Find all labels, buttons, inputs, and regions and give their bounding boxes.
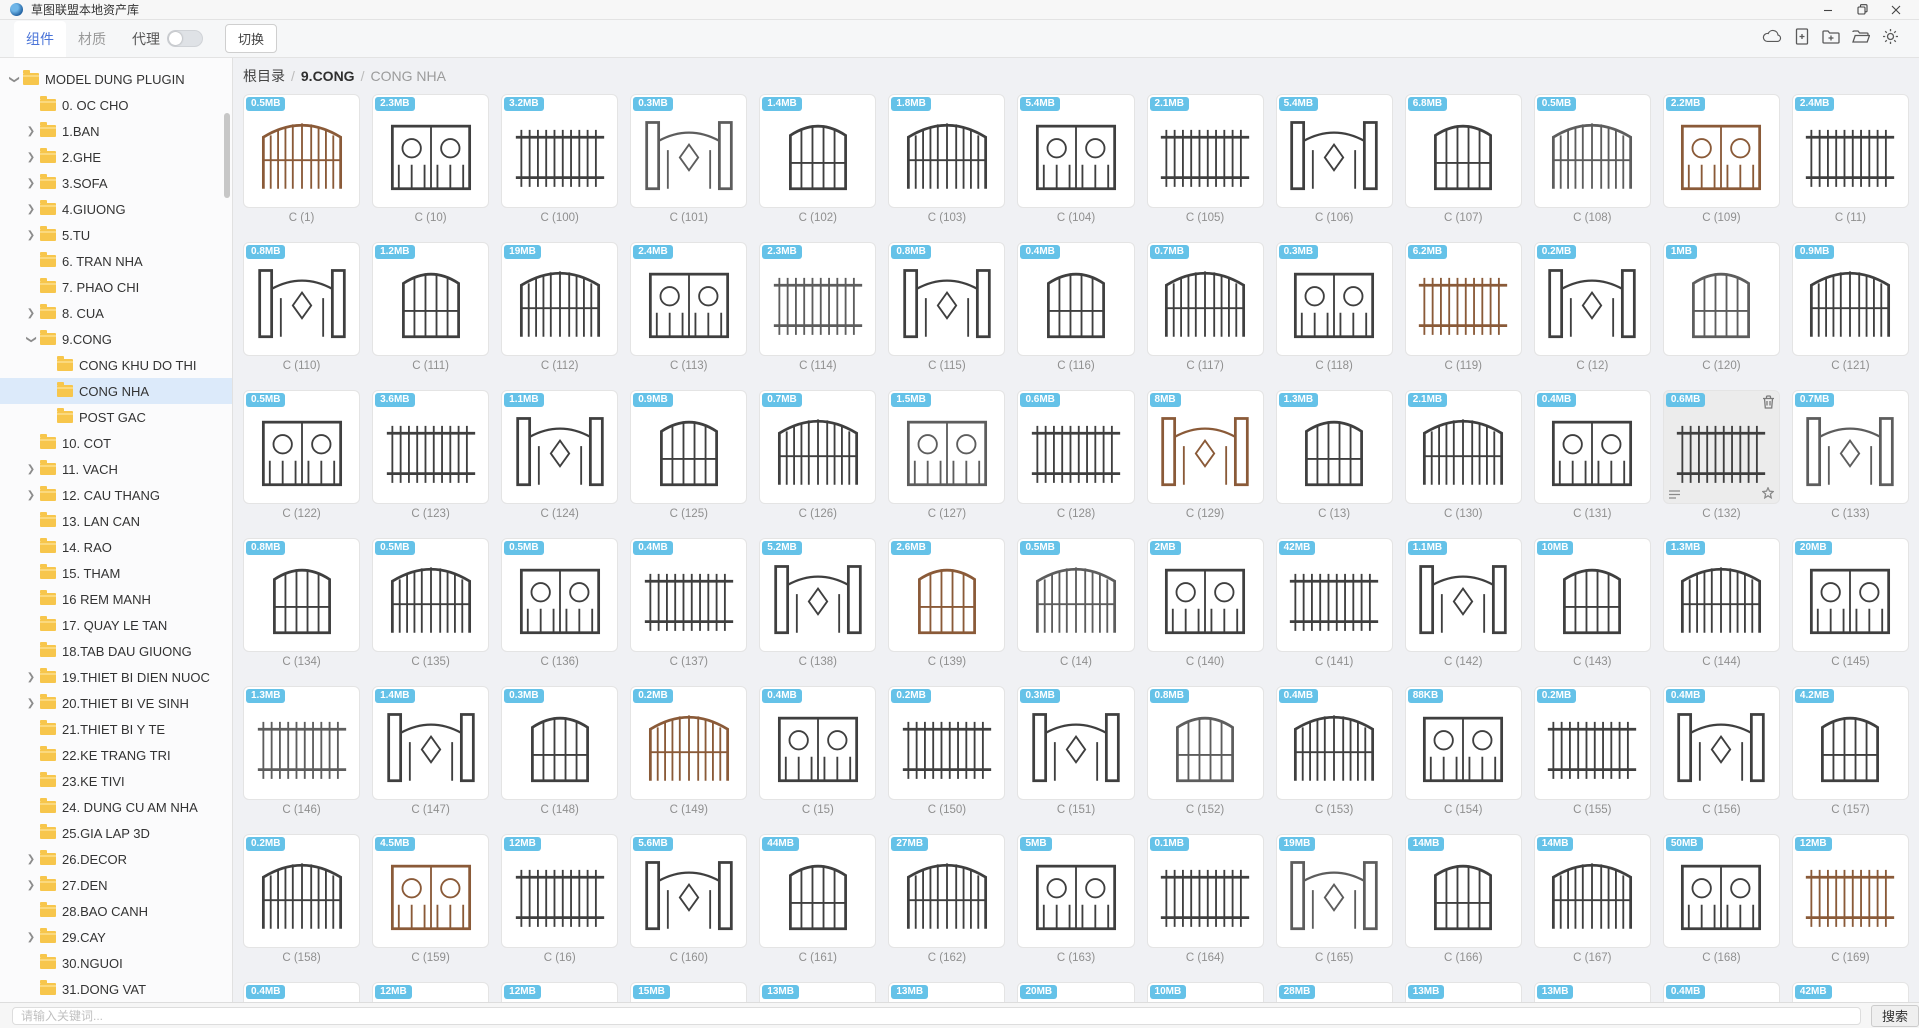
asset-card-c-105[interactable]: 2.1MB: [1147, 94, 1264, 208]
folder-icon: [40, 255, 56, 267]
size-badge: 5MB: [1020, 837, 1051, 851]
tree-item-10-cot[interactable]: 10. COT: [0, 430, 232, 456]
asset-card-c-10[interactable]: 2.3MB: [372, 94, 489, 208]
size-badge: 1.3MB: [246, 689, 285, 703]
chevron-icon[interactable]: ❯: [25, 178, 37, 189]
asset-thumbnail: [901, 257, 993, 341]
asset-card-c-11[interactable]: 2.4MB: [1792, 94, 1909, 208]
tree-item-5-tu[interactable]: ❯5.TU: [0, 222, 232, 248]
asset-label: C (149): [630, 804, 747, 820]
size-badge: 0.4MB: [1666, 985, 1705, 999]
chevron-icon[interactable]: ❯: [25, 126, 37, 137]
asset-card-c-136[interactable]: 0.5MB: [501, 538, 618, 652]
asset-cell: 0.9MBC (121): [1792, 242, 1909, 376]
tree-item-post-gac[interactable]: POST GAC: [0, 404, 232, 430]
asset-card-c-145[interactable]: 20MB: [1792, 538, 1909, 652]
asset-cell: 0.4MBC (153): [1276, 686, 1393, 820]
asset-label: C (115): [888, 360, 1005, 376]
tree-item-label: 28.BAO CANH: [62, 904, 148, 919]
asset-card-c-128[interactable]: 0.6MB: [1017, 390, 1134, 504]
tree-item-cong-khu-do-thi[interactable]: CONG KHU DO THI: [0, 352, 232, 378]
asset-card-c-149[interactable]: 0.2MB: [630, 686, 747, 800]
cloud-icon[interactable]: [1762, 28, 1782, 49]
size-badge: 2.1MB: [1150, 97, 1189, 111]
asset-card-c-153[interactable]: 0.4MB: [1276, 686, 1393, 800]
chevron-icon[interactable]: ❯: [26, 333, 37, 345]
size-badge: 5.4MB: [1279, 97, 1318, 111]
asset-card-c-111[interactable]: 1.2MB: [372, 242, 489, 356]
chevron-icon[interactable]: ❯: [25, 152, 37, 163]
asset-card-c-146[interactable]: 1.3MB: [243, 686, 360, 800]
asset-cell: 2MBC (140): [1147, 538, 1264, 672]
asset-thumbnail: [1417, 405, 1509, 489]
asset-cell: 44MBC (161): [759, 834, 876, 968]
asset-card-c-107[interactable]: 6.8MB: [1405, 94, 1522, 208]
asset-cell: 14MBC (167): [1534, 834, 1651, 968]
tree-item-30-nguoi[interactable]: 30.NGUOI: [0, 950, 232, 976]
asset-label: C (148): [501, 804, 618, 820]
asset-thumbnail: [1675, 701, 1767, 785]
tree-item-25-gia-lap-3d[interactable]: 25.GIA LAP 3D: [0, 820, 232, 846]
asset-card-c-14[interactable]: 0.5MB: [1017, 538, 1134, 652]
asset-card-c-151[interactable]: 0.3MB: [1017, 686, 1134, 800]
asset-card-c-159[interactable]: 4.5MB: [372, 834, 489, 948]
asset-card-c-131[interactable]: 0.4MB: [1534, 390, 1651, 504]
chevron-icon[interactable]: ❯: [25, 672, 37, 683]
chevron-icon[interactable]: ❯: [9, 73, 20, 85]
tree-item-28-bao-canh[interactable]: 28.BAO CANH: [0, 898, 232, 924]
chevron-icon[interactable]: ❯: [25, 204, 37, 215]
asset-label: C (130): [1405, 508, 1522, 524]
size-badge: 0.3MB: [1279, 245, 1318, 259]
folder-icon: [40, 125, 56, 137]
asset-card-c-127[interactable]: 1.5MB: [888, 390, 1005, 504]
asset-thumbnail: [514, 405, 606, 489]
chevron-icon[interactable]: ❯: [25, 464, 37, 475]
asset-card-c-126[interactable]: 0.7MB: [759, 390, 876, 504]
size-badge: 0.2MB: [633, 689, 672, 703]
tab-materials[interactable]: 材质: [66, 21, 118, 57]
asset-card[interactable]: 42MB: [1792, 982, 1909, 1002]
tree-item-19-thiet-bi-dien-nuoc[interactable]: ❯19.THIET BI DIEN NUOC: [0, 664, 232, 690]
asset-card-c-102[interactable]: 1.4MB: [759, 94, 876, 208]
size-badge: 0.6MB: [1020, 393, 1059, 407]
asset-label: C (120): [1663, 360, 1780, 376]
folder-icon: [40, 515, 56, 527]
size-badge: 5.6MB: [633, 837, 672, 851]
tree-item-1-ban[interactable]: ❯1.BAN: [0, 118, 232, 144]
asset-thumbnail: [1675, 257, 1767, 341]
asset-card-c-150[interactable]: 0.2MB: [888, 686, 1005, 800]
size-badge: 1.3MB: [1279, 393, 1318, 407]
asset-card-c-167[interactable]: 14MB: [1534, 834, 1651, 948]
tree-item-12-cau-thang[interactable]: ❯12. CAU THANG: [0, 482, 232, 508]
asset-card-c-157[interactable]: 4.2MB: [1792, 686, 1909, 800]
delete-icon[interactable]: [1762, 395, 1775, 414]
chevron-icon[interactable]: ❯: [25, 854, 37, 865]
asset-cell: 10MBC (143): [1534, 538, 1651, 672]
size-badge: 44MB: [762, 837, 799, 851]
tree-item-20-thiet-bi-ve-sinh[interactable]: ❯20.THIET BI VE SINH: [0, 690, 232, 716]
asset-thumbnail: [385, 553, 477, 637]
folder-icon: [40, 437, 56, 449]
asset-card-c-13[interactable]: 1.3MB: [1276, 390, 1393, 504]
tree-item-3-sofa[interactable]: ❯3.SOFA: [0, 170, 232, 196]
list-icon[interactable]: [1669, 486, 1680, 504]
tree-item-model-dung-plugin[interactable]: ❯MODEL DUNG PLUGIN: [0, 66, 232, 92]
asset-card[interactable]: 0.4MB: [243, 982, 360, 1002]
asset-label: C (163): [1017, 952, 1134, 968]
asset-card-c-119[interactable]: 6.2MB: [1405, 242, 1522, 356]
asset-card-c-110[interactable]: 0.8MB: [243, 242, 360, 356]
asset-card-c-112[interactable]: 19MB: [501, 242, 618, 356]
asset-card-c-120[interactable]: 1MB: [1663, 242, 1780, 356]
asset-label: C (154): [1405, 804, 1522, 820]
asset-cell: 0.8MBC (115): [888, 242, 1005, 376]
asset-thumbnail: [514, 257, 606, 341]
asset-card-c-155[interactable]: 0.2MB: [1534, 686, 1651, 800]
asset-card-c-156[interactable]: 0.4MB: [1663, 686, 1780, 800]
asset-card-c-161[interactable]: 44MB: [759, 834, 876, 948]
size-badge: 0.3MB: [633, 97, 672, 111]
asset-card-c-130[interactable]: 2.1MB: [1405, 390, 1522, 504]
tree-item-24-dung-cu-am-nha[interactable]: 24. DUNG CU AM NHA: [0, 794, 232, 820]
tree-item-label: CONG KHU DO THI: [79, 358, 197, 373]
asset-thumbnail: [1030, 553, 1122, 637]
tree-item-16-rem-manh[interactable]: 16 REM MANH: [0, 586, 232, 612]
asset-card-c-16[interactable]: 12MB: [501, 834, 618, 948]
asset-thumbnail: [901, 701, 993, 785]
folder-icon: [57, 411, 73, 423]
asset-cell: 0.5MBC (136): [501, 538, 618, 672]
chevron-icon[interactable]: ❯: [25, 308, 37, 319]
asset-thumbnail: [643, 701, 735, 785]
tree-item-2-ghe[interactable]: ❯2.GHE: [0, 144, 232, 170]
asset-card-c-134[interactable]: 0.8MB: [243, 538, 360, 652]
search-button[interactable]: 搜索: [1871, 1005, 1919, 1027]
asset-card[interactable]: 12MB: [501, 982, 618, 1002]
size-badge: 0.5MB: [1020, 541, 1059, 555]
chevron-icon[interactable]: ❯: [25, 698, 37, 709]
tree-item-29-cay[interactable]: ❯29.CAY: [0, 924, 232, 950]
asset-thumbnail: [1159, 109, 1251, 193]
tree-item-13-lan-can[interactable]: 13. LAN CAN: [0, 508, 232, 534]
asset-cell: 14MBC (166): [1405, 834, 1522, 968]
asset-cell: 88KBC (154): [1405, 686, 1522, 820]
asset-cell: 13MB: [759, 982, 876, 1002]
asset-label: C (106): [1276, 212, 1393, 228]
tree-item-6-tran-nha[interactable]: 6. TRAN NHA: [0, 248, 232, 274]
asset-card[interactable]: 13MB: [1405, 982, 1522, 1002]
asset-cell: 19MBC (165): [1276, 834, 1393, 968]
tree-item-21-thiet-bi-y-te[interactable]: 21.THIET BI Y TE: [0, 716, 232, 742]
size-badge: 3.6MB: [375, 393, 414, 407]
asset-label: C (135): [372, 656, 489, 672]
asset-card-c-137[interactable]: 0.4MB: [630, 538, 747, 652]
asset-card-c-133[interactable]: 0.7MB: [1792, 390, 1909, 504]
asset-card-c-109[interactable]: 2.2MB: [1663, 94, 1780, 208]
tree-item-label: 21.THIET BI Y TE: [62, 722, 165, 737]
asset-card-c-124[interactable]: 1.1MB: [501, 390, 618, 504]
asset-card-c-144[interactable]: 1.3MB: [1663, 538, 1780, 652]
size-badge: 5.4MB: [1020, 97, 1059, 111]
asset-card-c-116[interactable]: 0.4MB: [1017, 242, 1134, 356]
folder-add-icon[interactable]: [1822, 29, 1840, 49]
asset-card-c-118[interactable]: 0.3MB: [1276, 242, 1393, 356]
asset-cell: 12MB: [501, 982, 618, 1002]
folder-icon: [40, 151, 56, 163]
size-badge: 0.5MB: [246, 97, 285, 111]
tree-item-label: 14. RAO: [62, 540, 112, 555]
size-badge: 14MB: [1537, 837, 1574, 851]
favorite-star-icon[interactable]: [1762, 486, 1774, 504]
asset-thumbnail: [1804, 109, 1896, 193]
asset-card-c-142[interactable]: 1.1MB: [1405, 538, 1522, 652]
asset-card-c-140[interactable]: 2MB: [1147, 538, 1264, 652]
asset-card-c-169[interactable]: 12MB: [1792, 834, 1909, 948]
asset-card-c-158[interactable]: 0.2MB: [243, 834, 360, 948]
tree-item-9-cong[interactable]: ❯9.CONG: [0, 326, 232, 352]
asset-card-c-168[interactable]: 50MB: [1663, 834, 1780, 948]
folder-icon: [40, 229, 56, 241]
asset-card-c-104[interactable]: 5.4MB: [1017, 94, 1134, 208]
tree-item-7-phao-chi[interactable]: 7. PHAO CHI: [0, 274, 232, 300]
tree-item-23-ke-tivi[interactable]: 23.KE TIVI: [0, 768, 232, 794]
folder-icon: [40, 671, 56, 683]
size-badge: 0.6MB: [1666, 393, 1705, 407]
asset-card-c-162[interactable]: 27MB: [888, 834, 1005, 948]
asset-card[interactable]: 15MB: [630, 982, 747, 1002]
asset-thumbnail: [385, 405, 477, 489]
asset-card-c-106[interactable]: 5.4MB: [1276, 94, 1393, 208]
asset-thumbnail: [1159, 849, 1251, 933]
asset-card[interactable]: 13MB: [759, 982, 876, 1002]
asset-thumbnail: [1546, 257, 1638, 341]
tree-item-11-vach[interactable]: ❯11. VACH: [0, 456, 232, 482]
tree-item-label: 6. TRAN NHA: [62, 254, 143, 269]
size-badge: 13MB: [891, 985, 928, 999]
asset-cell: 0.2MBC (155): [1534, 686, 1651, 820]
tree-item-label: POST GAC: [79, 410, 146, 425]
tree-item-14-rao[interactable]: 14. RAO: [0, 534, 232, 560]
asset-cell: 0.6MBC (132): [1663, 390, 1780, 524]
size-badge: 1.1MB: [504, 393, 543, 407]
tree-item-22-ke-trang-tri[interactable]: 22.KE TRANG TRI: [0, 742, 232, 768]
folder-icon: [40, 957, 56, 969]
asset-thumbnail: [1546, 849, 1638, 933]
asset-label: C (161): [759, 952, 876, 968]
asset-cell: 0.7MBC (126): [759, 390, 876, 524]
asset-card-c-113[interactable]: 2.4MB: [630, 242, 747, 356]
asset-card[interactable]: 0.4MB: [1663, 982, 1780, 1002]
proxy-toggle[interactable]: [167, 30, 203, 47]
asset-thumbnail: [772, 109, 864, 193]
asset-card-c-148[interactable]: 0.3MB: [501, 686, 618, 800]
asset-card-c-165[interactable]: 19MB: [1276, 834, 1393, 948]
asset-thumbnail: [1804, 553, 1896, 637]
chevron-icon[interactable]: ❯: [25, 230, 37, 241]
asset-label: C (123): [372, 508, 489, 524]
tree-item-26-decor[interactable]: ❯26.DECOR: [0, 846, 232, 872]
size-badge: 2.2MB: [1666, 97, 1705, 111]
tree-item-label: 20.THIET BI VE SINH: [62, 696, 189, 711]
folder-icon: [40, 801, 56, 813]
size-badge: 12MB: [375, 985, 412, 999]
asset-thumbnail: [1675, 405, 1767, 489]
size-badge: 1.4MB: [375, 689, 414, 703]
asset-card-c-139[interactable]: 2.6MB: [888, 538, 1005, 652]
asset-cell: 28MB: [1276, 982, 1393, 1002]
asset-label: C (10): [372, 212, 489, 228]
asset-label: C (145): [1792, 656, 1909, 672]
tree-item-18-tab-dau-giuong[interactable]: 18.TAB DAU GIUONG: [0, 638, 232, 664]
asset-label: C (136): [501, 656, 618, 672]
asset-card-c-121[interactable]: 0.9MB: [1792, 242, 1909, 356]
asset-cell: 5.6MBC (160): [630, 834, 747, 968]
asset-cell: 2.6MBC (139): [888, 538, 1005, 672]
asset-thumbnail: [772, 257, 864, 341]
asset-card[interactable]: 13MB: [1534, 982, 1651, 1002]
sidebar-scrollbar[interactable]: [224, 113, 230, 198]
size-badge: 2.4MB: [1795, 97, 1834, 111]
asset-cell: 0.4MBC (131): [1534, 390, 1651, 524]
asset-cell: 5.4MBC (104): [1017, 94, 1134, 228]
asset-thumbnail: [1804, 405, 1896, 489]
tree-item-label: 29.CAY: [62, 930, 106, 945]
asset-cell: 0.4MB: [243, 982, 360, 1002]
tree-item-4-giuong[interactable]: ❯4.GIUONG: [0, 196, 232, 222]
minimize-button[interactable]: [1811, 0, 1845, 19]
tree-item-cong-nha[interactable]: CONG NHA: [0, 378, 232, 404]
asset-label: C (102): [759, 212, 876, 228]
asset-card-c-143[interactable]: 10MB: [1534, 538, 1651, 652]
size-badge: 12MB: [504, 985, 541, 999]
asset-card-c-152[interactable]: 0.8MB: [1147, 686, 1264, 800]
asset-cell: 3.2MBC (100): [501, 94, 618, 228]
asset-card[interactable]: 20MB: [1017, 982, 1134, 1002]
tree-item-label: 0. OC CHO: [62, 98, 128, 113]
asset-card-c-129[interactable]: 8MB: [1147, 390, 1264, 504]
asset-cell: 0.4MBC (15): [759, 686, 876, 820]
asset-card-c-138[interactable]: 5.2MB: [759, 538, 876, 652]
asset-card-c-141[interactable]: 42MB: [1276, 538, 1393, 652]
asset-grid: 0.5MBC (1)2.3MBC (10)3.2MBC (100)0.3MBC …: [233, 88, 1919, 1002]
search-input[interactable]: [12, 1007, 1861, 1025]
asset-card-c-1[interactable]: 0.5MB: [243, 94, 360, 208]
size-badge: 0.1MB: [1150, 837, 1189, 851]
folder-open-icon[interactable]: [1852, 29, 1870, 49]
asset-cell: 2.3MBC (114): [759, 242, 876, 376]
size-badge: 28MB: [1279, 985, 1316, 999]
asset-card[interactable]: 10MB: [1147, 982, 1264, 1002]
asset-label: C (150): [888, 804, 1005, 820]
asset-card-c-114[interactable]: 2.3MB: [759, 242, 876, 356]
folder-icon: [40, 697, 56, 709]
tree-item-31-dong-vat[interactable]: 31.DONG VAT: [0, 976, 232, 1002]
tree-item-label: 10. COT: [62, 436, 111, 451]
maximize-button[interactable]: [1845, 0, 1879, 19]
size-badge: 42MB: [1795, 985, 1832, 999]
asset-cell: 2.2MBC (109): [1663, 94, 1780, 228]
settings-icon[interactable]: [1882, 28, 1899, 50]
asset-card-c-15[interactable]: 0.4MB: [759, 686, 876, 800]
asset-card[interactable]: 13MB: [888, 982, 1005, 1002]
asset-card-c-101[interactable]: 0.3MB: [630, 94, 747, 208]
breadcrumb-separator: /: [291, 68, 295, 84]
tree-item-label: 18.TAB DAU GIUONG: [62, 644, 192, 659]
folder-icon: [40, 749, 56, 761]
size-badge: 1.1MB: [1408, 541, 1447, 555]
asset-card-c-100[interactable]: 3.2MB: [501, 94, 618, 208]
asset-label: C (118): [1276, 360, 1393, 376]
window-titlebar: 草图联盟本地资产库: [0, 0, 1919, 20]
asset-card-c-123[interactable]: 3.6MB: [372, 390, 489, 504]
asset-label: C (169): [1792, 952, 1909, 968]
asset-label: C (105): [1147, 212, 1264, 228]
asset-card-c-115[interactable]: 0.8MB: [888, 242, 1005, 356]
tree-item-15-tham[interactable]: 15. THAM: [0, 560, 232, 586]
asset-card-c-154[interactable]: 88KB: [1405, 686, 1522, 800]
asset-card-c-163[interactable]: 5MB: [1017, 834, 1134, 948]
asset-card[interactable]: 12MB: [372, 982, 489, 1002]
asset-card-c-117[interactable]: 0.7MB: [1147, 242, 1264, 356]
asset-card-c-122[interactable]: 0.5MB: [243, 390, 360, 504]
tree-item-27-den[interactable]: ❯27.DEN: [0, 872, 232, 898]
asset-card-c-164[interactable]: 0.1MB: [1147, 834, 1264, 948]
asset-card-c-125[interactable]: 0.9MB: [630, 390, 747, 504]
size-badge: 8MB: [1150, 393, 1181, 407]
asset-cell: 4.2MBC (157): [1792, 686, 1909, 820]
size-badge: 2.4MB: [633, 245, 672, 259]
asset-card-c-135[interactable]: 0.5MB: [372, 538, 489, 652]
size-badge: 0.4MB: [1537, 393, 1576, 407]
asset-label: C (119): [1405, 360, 1522, 376]
chevron-icon[interactable]: ❯: [25, 490, 37, 501]
asset-label: C (129): [1147, 508, 1264, 524]
size-badge: 12MB: [504, 837, 541, 851]
size-badge: 0.8MB: [246, 245, 285, 259]
tree-item-17-quay-le-tan[interactable]: 17. QUAY LE TAN: [0, 612, 232, 638]
asset-thumbnail: [514, 849, 606, 933]
tree-item-0-oc-cho[interactable]: 0. OC CHO: [0, 92, 232, 118]
asset-cell: 2.4MBC (113): [630, 242, 747, 376]
asset-card-c-147[interactable]: 1.4MB: [372, 686, 489, 800]
chevron-icon[interactable]: ❯: [25, 880, 37, 891]
asset-card-c-108[interactable]: 0.5MB: [1534, 94, 1651, 208]
breadcrumb-segment-[interactable]: 根目录: [243, 66, 285, 86]
asset-card-c-12[interactable]: 0.2MB: [1534, 242, 1651, 356]
asset-card-c-160[interactable]: 5.6MB: [630, 834, 747, 948]
switch-button[interactable]: 切换: [225, 24, 277, 53]
tree-item-label: 12. CAU THANG: [62, 488, 160, 503]
close-button[interactable]: [1879, 0, 1913, 19]
tree-item-label: 1.BAN: [62, 124, 100, 139]
tab-components[interactable]: 组件: [14, 21, 66, 57]
asset-card-c-166[interactable]: 14MB: [1405, 834, 1522, 948]
tree-item-8-cua[interactable]: ❯8. CUA: [0, 300, 232, 326]
folder-icon: [40, 333, 56, 345]
file-add-icon[interactable]: [1794, 28, 1810, 50]
asset-card-c-132[interactable]: 0.6MB: [1663, 390, 1780, 504]
chevron-icon[interactable]: ❯: [25, 932, 37, 943]
size-badge: 2.3MB: [375, 97, 414, 111]
asset-card[interactable]: 28MB: [1276, 982, 1393, 1002]
breadcrumb-segment-9-cong[interactable]: 9.CONG: [301, 68, 355, 84]
asset-thumbnail: [1675, 553, 1767, 637]
tree-item-label: 4.GIUONG: [62, 202, 126, 217]
asset-cell: 20MBC (145): [1792, 538, 1909, 672]
asset-card-c-103[interactable]: 1.8MB: [888, 94, 1005, 208]
